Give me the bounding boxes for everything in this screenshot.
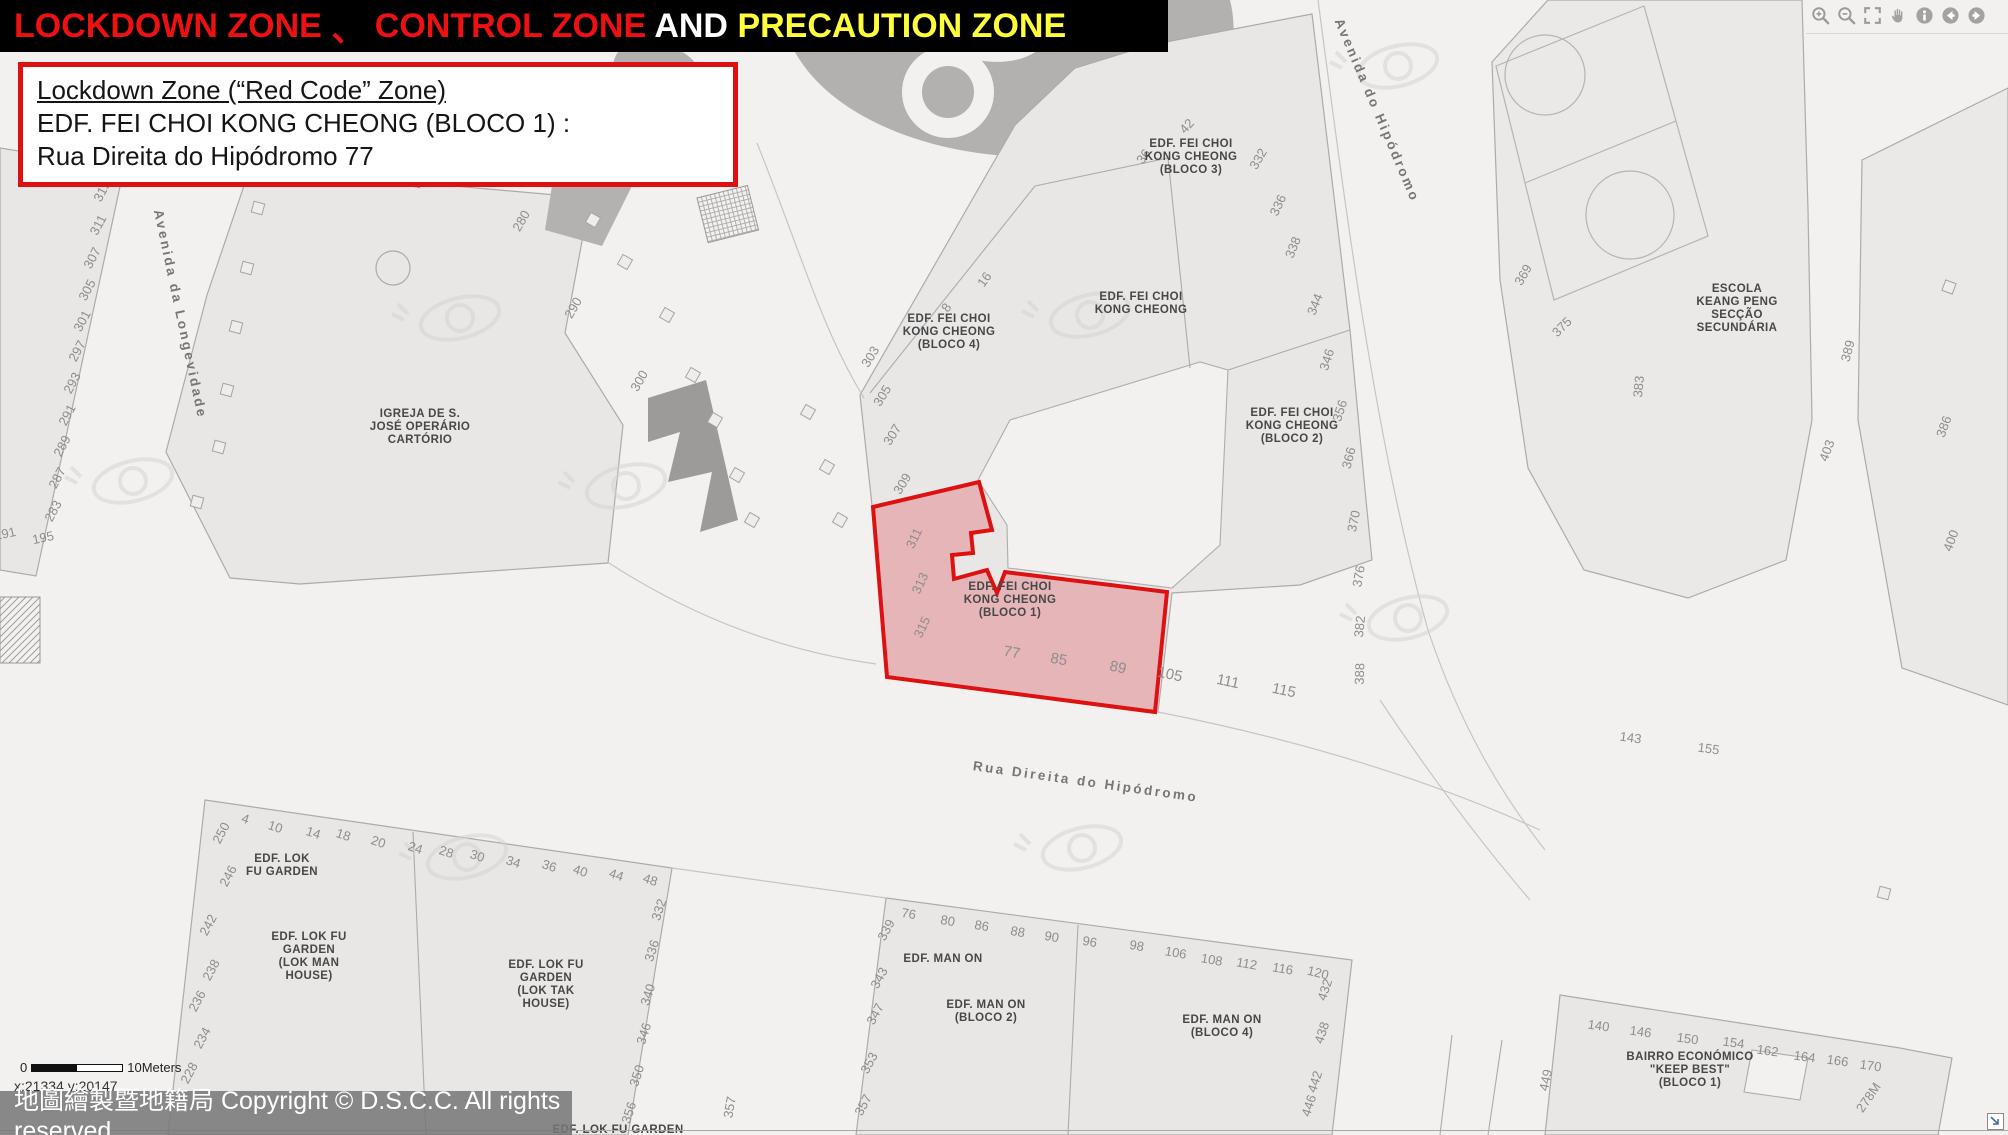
house-number: 98 bbox=[1128, 937, 1145, 954]
zoom-out-icon[interactable] bbox=[1836, 5, 1857, 26]
house-number: 143 bbox=[1619, 729, 1643, 747]
building-label: EDF. MAN ON(BLOCO 2) bbox=[946, 999, 1025, 1024]
house-number: 80 bbox=[939, 912, 956, 929]
planter-square bbox=[251, 201, 264, 214]
map-application: 3153113073053012972932912892872831911952… bbox=[0, 0, 2008, 1135]
house-number: 90 bbox=[1043, 928, 1060, 945]
house-number: 170 bbox=[1859, 1057, 1883, 1075]
planter-square bbox=[229, 320, 242, 333]
map-toolbar bbox=[1810, 5, 1987, 26]
full-extent-icon[interactable] bbox=[1862, 5, 1883, 26]
building-label: EDF. LOKFU GARDEN bbox=[246, 853, 318, 878]
house-number: 162 bbox=[1756, 1042, 1780, 1060]
house-number: 154 bbox=[1722, 1034, 1746, 1052]
toolbar-divider bbox=[1806, 33, 2008, 34]
house-number: 96 bbox=[1081, 933, 1098, 950]
lockdown-info-box: Lockdown Zone (“Red Code” Zone) EDF. FEI… bbox=[18, 62, 738, 187]
next-view-icon[interactable] bbox=[1966, 5, 1987, 26]
house-number: 140 bbox=[1587, 1017, 1611, 1035]
house-number: 164 bbox=[1793, 1048, 1817, 1066]
playground-ring-core bbox=[922, 66, 974, 118]
house-number: 383 bbox=[1630, 375, 1647, 398]
scale-distance-label: 10Meters bbox=[127, 1060, 181, 1075]
planter-square bbox=[1877, 886, 1890, 899]
house-number: 77 bbox=[1002, 643, 1021, 663]
house-number: 150 bbox=[1676, 1030, 1700, 1048]
info-address: Rua Direita do Hipódromo 77 bbox=[37, 140, 719, 173]
title-segment: AND bbox=[646, 7, 737, 46]
title-segment: PRECAUTION ZONE bbox=[737, 7, 1066, 46]
previous-view-icon[interactable] bbox=[1940, 5, 1961, 26]
house-number: 88 bbox=[1009, 923, 1026, 940]
planter-square bbox=[220, 383, 233, 396]
zoom-in-icon[interactable] bbox=[1810, 5, 1831, 26]
planter-square bbox=[240, 261, 253, 274]
info-building: EDF. FEI CHOI KONG CHEONG (BLOCO 1) : bbox=[37, 107, 719, 140]
overview-map-toggle-icon[interactable] bbox=[1987, 1113, 2004, 1130]
house-number: 86 bbox=[973, 917, 990, 934]
building-label: EDF. MAN ON(BLOCO 4) bbox=[1182, 1014, 1261, 1039]
planter-square bbox=[212, 440, 225, 453]
info-heading: Lockdown Zone (“Red Code” Zone) bbox=[37, 74, 719, 107]
building-label: EDF. MAN ON bbox=[903, 953, 982, 965]
house-number: 89 bbox=[1108, 658, 1128, 678]
title-bar: LOCKDOWN ZONE 、 CONTROL ZONE AND PRECAUT… bbox=[0, 0, 1168, 52]
building-label: EDF. FEI CHOIKONG CHEONG bbox=[1095, 291, 1188, 316]
scale-bar: 0 10Meters bbox=[20, 1060, 181, 1075]
title-segment: 、 bbox=[331, 2, 374, 51]
identify-icon[interactable] bbox=[1914, 5, 1935, 26]
house-number: 166 bbox=[1826, 1052, 1850, 1070]
scale-bar-graphic bbox=[31, 1064, 123, 1072]
title-segment: CONTROL ZONE bbox=[375, 7, 646, 46]
copyright-text: 地圖繪製暨地籍局 Copyright © D.S.C.C. All rights… bbox=[14, 1081, 572, 1135]
copyright-bar: 地圖繪製暨地籍局 Copyright © D.S.C.C. All rights… bbox=[0, 1091, 572, 1135]
hatched-structure bbox=[0, 597, 40, 663]
pan-icon[interactable] bbox=[1888, 5, 1909, 26]
title-segment: LOCKDOWN ZONE bbox=[14, 7, 331, 46]
house-number: 76 bbox=[900, 905, 917, 922]
house-number: 85 bbox=[1049, 650, 1068, 670]
diagonal-arrow-icon bbox=[1990, 1116, 2001, 1127]
house-number: 388 bbox=[1352, 663, 1368, 685]
scale-zero-label: 0 bbox=[20, 1060, 27, 1075]
house-number: 155 bbox=[1697, 740, 1721, 758]
house-number: 382 bbox=[1351, 615, 1368, 638]
planter-square bbox=[190, 495, 203, 508]
church-dome-outline bbox=[376, 251, 410, 285]
house-number: 146 bbox=[1629, 1023, 1653, 1041]
